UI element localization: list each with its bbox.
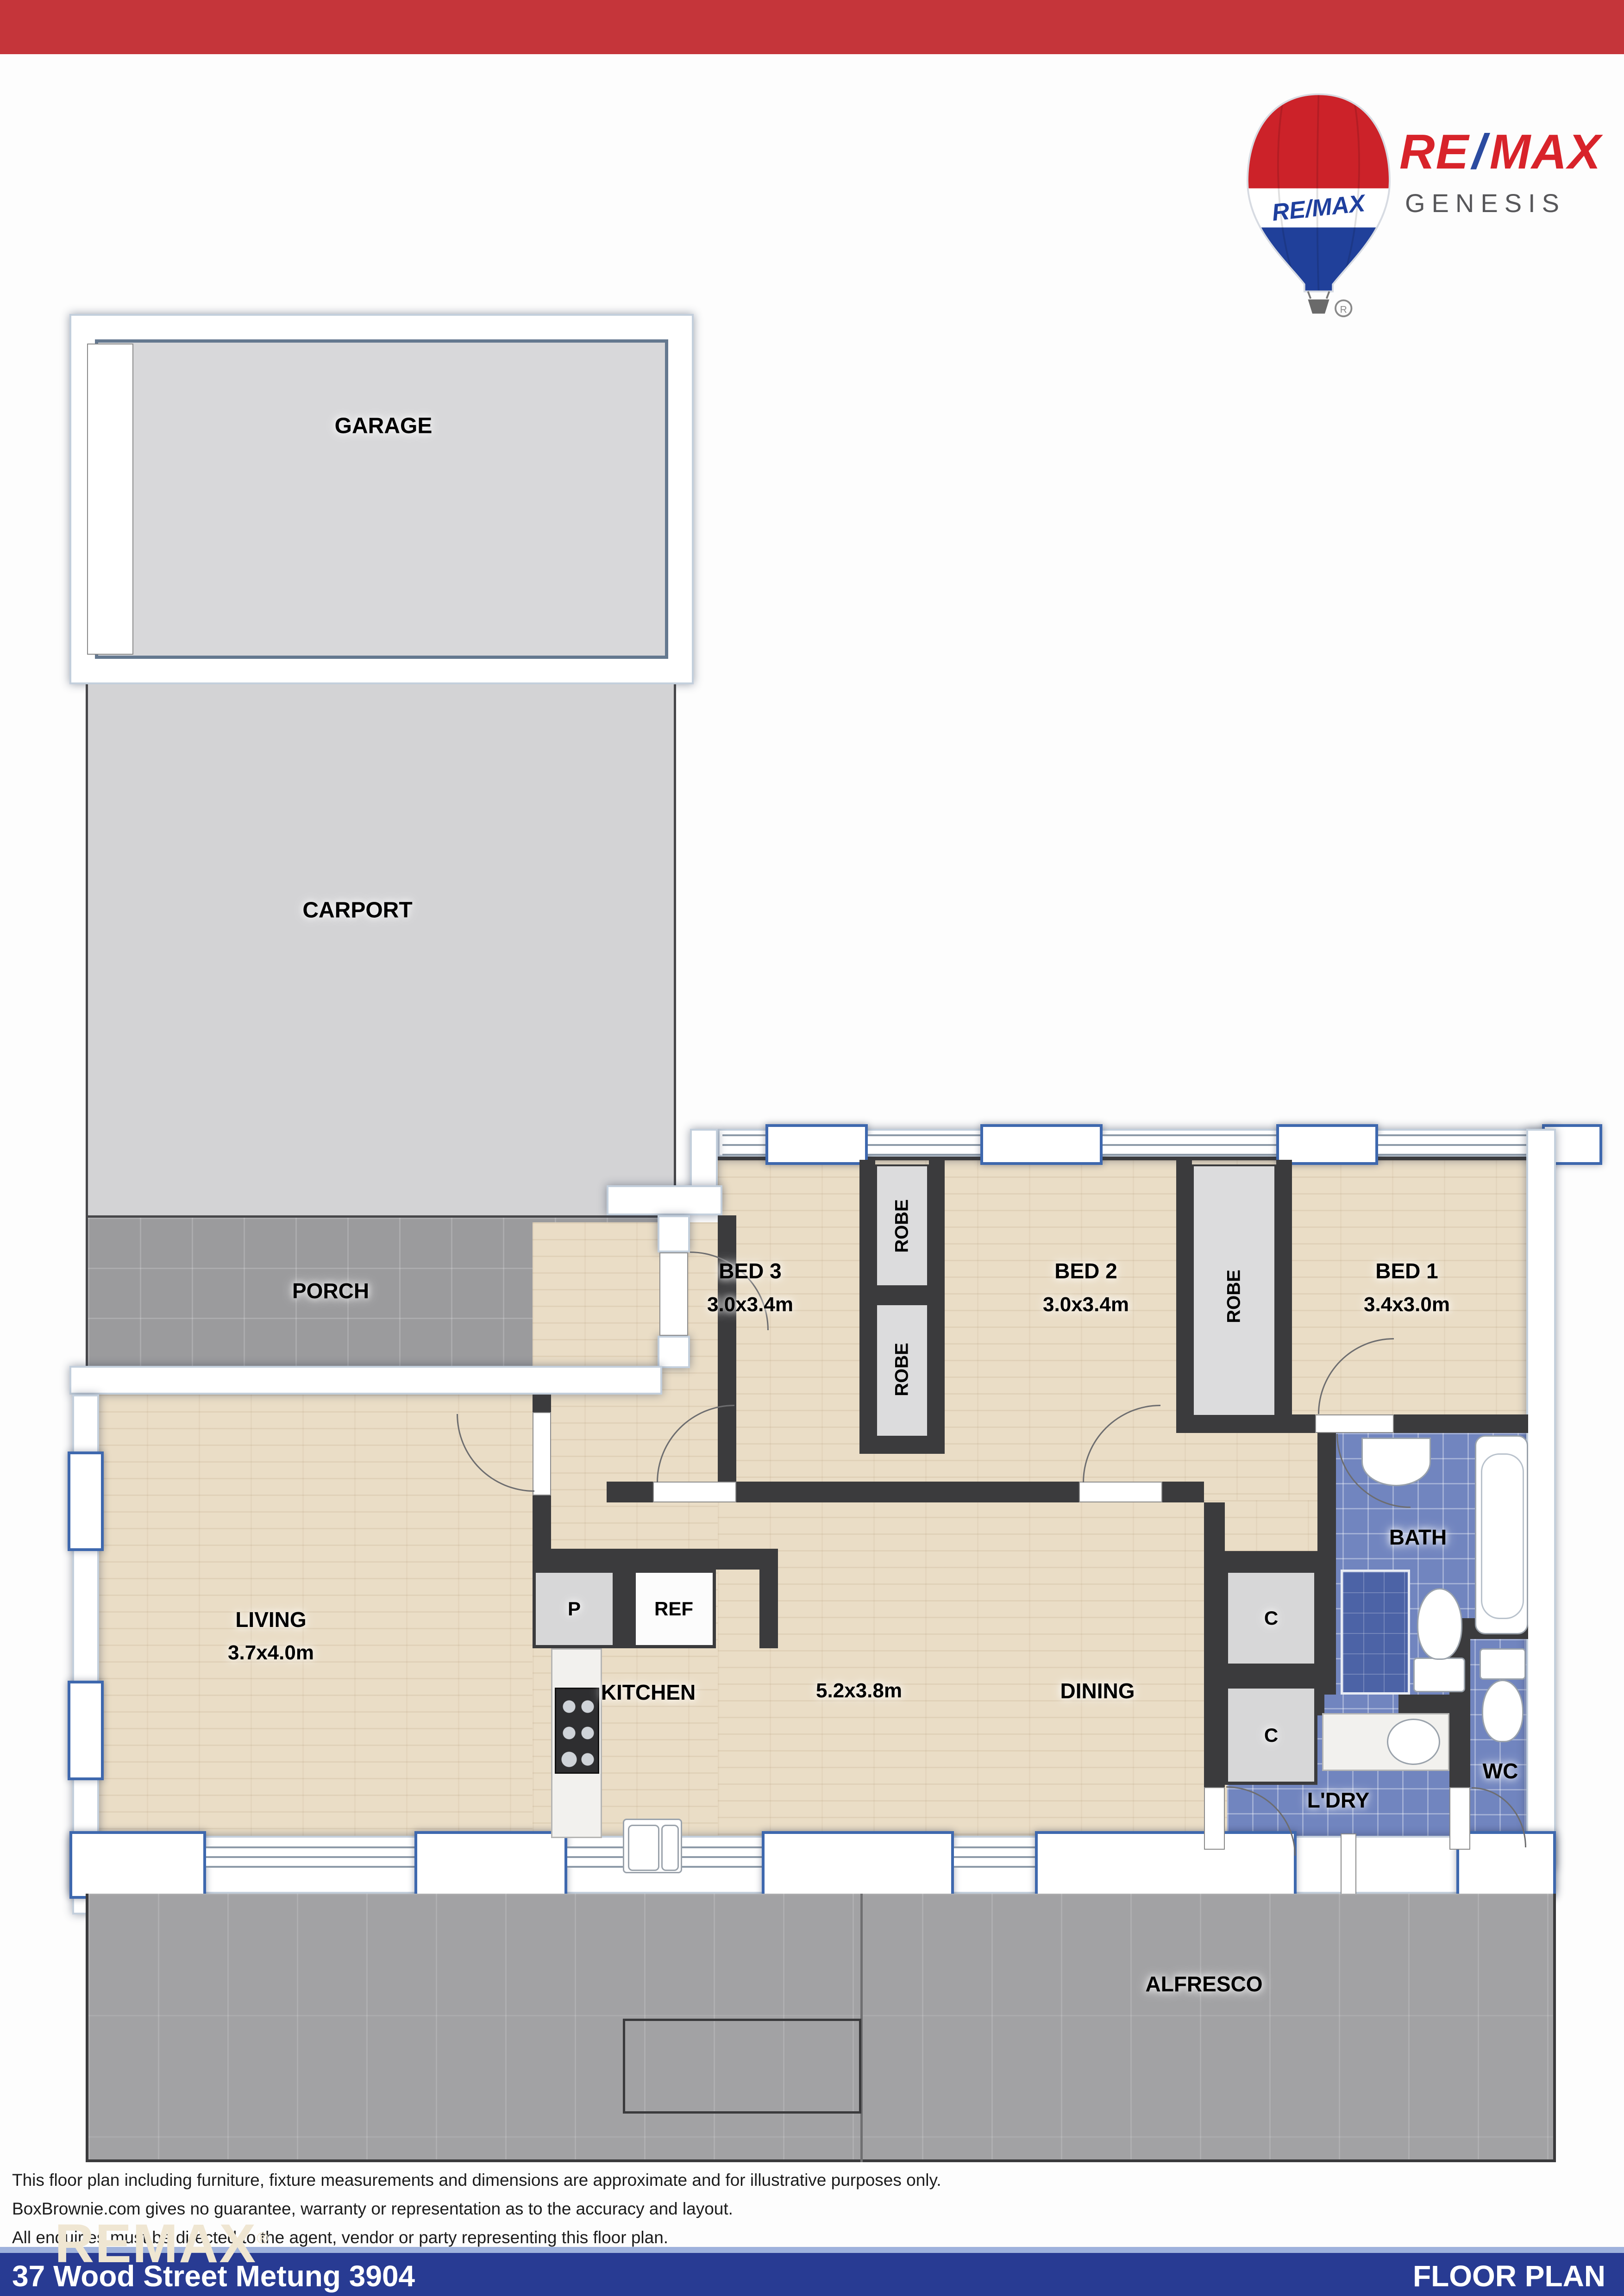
carport-area bbox=[86, 684, 676, 1218]
window-pier-top-2 bbox=[980, 1124, 1103, 1165]
label-cupboard-1: C bbox=[1264, 1607, 1278, 1629]
wall-bed1-bottom-a bbox=[1292, 1414, 1315, 1433]
label-cupboard-2: C bbox=[1264, 1724, 1278, 1746]
wall-beds-bottom-c bbox=[1162, 1482, 1204, 1502]
cooktop-icon bbox=[555, 1688, 599, 1774]
window-bottom-line-1 bbox=[206, 1846, 414, 1868]
wall-kitchen-corner bbox=[759, 1570, 778, 1648]
label-bed1: BED 1 bbox=[1375, 1258, 1438, 1283]
window-top-3 bbox=[1103, 1134, 1276, 1156]
label-dining: DINING bbox=[1060, 1678, 1135, 1703]
label-open-plan-dims: 5.2x3.8m bbox=[816, 1679, 902, 1702]
window-left-2 bbox=[68, 1681, 104, 1780]
wall-robe2-bottom bbox=[1176, 1417, 1292, 1433]
label-bath: BATH bbox=[1389, 1525, 1447, 1550]
document-title: FLOOR PLAN bbox=[1413, 2256, 1605, 2296]
kitchen-dining-floor bbox=[718, 1500, 1227, 1852]
label-robe-2: ROBE bbox=[892, 1343, 913, 1396]
label-bed2: BED 2 bbox=[1054, 1258, 1117, 1283]
label-living: LIVING bbox=[235, 1607, 306, 1632]
wall-cupboard-left bbox=[1204, 1502, 1225, 1787]
wall-bed1-bottom-b bbox=[1394, 1414, 1528, 1433]
label-bed1-dims: 3.4x3.0m bbox=[1364, 1293, 1450, 1316]
bath-toilet-tank bbox=[1413, 1658, 1465, 1692]
wordmark-slash: / bbox=[1469, 125, 1489, 179]
garage-floor bbox=[95, 339, 668, 659]
window-pier-top-1 bbox=[765, 1124, 868, 1165]
label-robe-3: ROBE bbox=[1224, 1270, 1245, 1323]
wall-pantry-ref bbox=[616, 1570, 633, 1648]
kitchen-sink-icon bbox=[623, 1819, 682, 1873]
label-fridge: REF bbox=[654, 1598, 693, 1620]
label-porch: PORCH bbox=[292, 1278, 369, 1303]
shower-icon bbox=[1341, 1570, 1410, 1695]
wall-robe1-left bbox=[859, 1160, 875, 1454]
window-bottom-1 bbox=[69, 1831, 206, 1899]
wall-living-hall-a bbox=[533, 1395, 551, 1412]
label-wc: WC bbox=[1483, 1758, 1518, 1783]
remax-balloon-icon: RE/MAX R bbox=[1229, 89, 1408, 318]
wall-porch-right-lower bbox=[658, 1336, 690, 1368]
wordmark-re: RE bbox=[1399, 125, 1469, 179]
label-bed2-dims: 3.0x3.4m bbox=[1043, 1293, 1129, 1316]
bed1-door-jamb bbox=[1315, 1414, 1394, 1433]
svg-text:R: R bbox=[1340, 304, 1347, 315]
label-alfresco: ALFRESCO bbox=[1146, 1971, 1263, 1996]
window-top-2 bbox=[868, 1134, 980, 1156]
disclaimer-line-1: This floor plan including furniture, fix… bbox=[12, 2167, 1448, 2194]
wall-robe1-mid bbox=[875, 1287, 929, 1303]
brand-division-label: GENESIS bbox=[1405, 188, 1566, 218]
bed3-door-jamb bbox=[653, 1482, 736, 1502]
wc-toilet-tank bbox=[1480, 1648, 1526, 1680]
label-robe-1: ROBE bbox=[892, 1199, 913, 1253]
label-pantry: P bbox=[568, 1598, 581, 1620]
window-top-4 bbox=[1378, 1134, 1542, 1156]
window-left-1 bbox=[68, 1451, 104, 1551]
bath-toilet-bowl bbox=[1417, 1588, 1462, 1660]
bathtub-icon bbox=[1475, 1435, 1528, 1634]
label-carport: CARPORT bbox=[302, 898, 412, 923]
label-laundry: L'DRY bbox=[1307, 1788, 1369, 1813]
property-address: 37 Wood Street Metung 3904 bbox=[12, 2256, 415, 2296]
wall-bath-left bbox=[1317, 1433, 1336, 1695]
sliding-door-kitchen bbox=[762, 1831, 954, 1899]
wall-right bbox=[1526, 1129, 1556, 1870]
living-door-jamb bbox=[533, 1412, 551, 1495]
window-top-1 bbox=[722, 1134, 766, 1156]
garage-door bbox=[87, 344, 133, 655]
wall-robe1-bottom bbox=[859, 1438, 945, 1454]
wall-robe2-right bbox=[1276, 1160, 1292, 1433]
window-bottom-line-3 bbox=[954, 1846, 1035, 1868]
wc-toilet-bowl bbox=[1482, 1680, 1524, 1742]
label-kitchen: KITCHEN bbox=[601, 1680, 696, 1705]
wall-cupboard-mid bbox=[1225, 1667, 1317, 1685]
window-pier-top-3 bbox=[1276, 1124, 1378, 1165]
wall-kitchen-top bbox=[533, 1549, 778, 1570]
laundry-door-jamb bbox=[1204, 1787, 1225, 1850]
remax-wordmark: RE/MAX bbox=[1399, 124, 1601, 180]
wall-stub-laundry-door bbox=[1341, 1833, 1356, 1896]
wordmark-max: MAX bbox=[1490, 125, 1602, 179]
wc-door-jamb bbox=[1449, 1787, 1470, 1850]
front-door-jamb bbox=[659, 1252, 688, 1336]
alfresco-step bbox=[623, 2019, 861, 2114]
wall-robe2-left bbox=[1176, 1160, 1192, 1433]
wall-robe1-right bbox=[929, 1160, 945, 1454]
window-bottom-2 bbox=[414, 1831, 567, 1899]
wall-beds-bottom-a bbox=[607, 1482, 653, 1502]
label-bed3-dims: 3.0x3.4m bbox=[707, 1293, 793, 1316]
label-garage: GARAGE bbox=[335, 413, 433, 439]
label-bed3: BED 3 bbox=[719, 1258, 781, 1283]
floor-plan-page: RE/MAX R RE/MAX GENESIS GARAGE CARPORT P… bbox=[0, 0, 1624, 2296]
laundry-sink-icon bbox=[1387, 1719, 1440, 1765]
label-living-dims: 3.7x4.0m bbox=[228, 1641, 314, 1664]
wall-cupboard-top bbox=[1225, 1551, 1317, 1570]
wall-porch-right-upper bbox=[658, 1215, 690, 1252]
wall-bath-bottom-b bbox=[1398, 1695, 1449, 1715]
wall-top-living bbox=[69, 1366, 662, 1395]
living-floor bbox=[95, 1395, 533, 1853]
bed2-door-jamb bbox=[1079, 1482, 1162, 1502]
wall-entry-step-top bbox=[607, 1185, 722, 1215]
top-brand-bar bbox=[0, 0, 1624, 54]
wall-beds-bottom-b bbox=[736, 1482, 1079, 1502]
